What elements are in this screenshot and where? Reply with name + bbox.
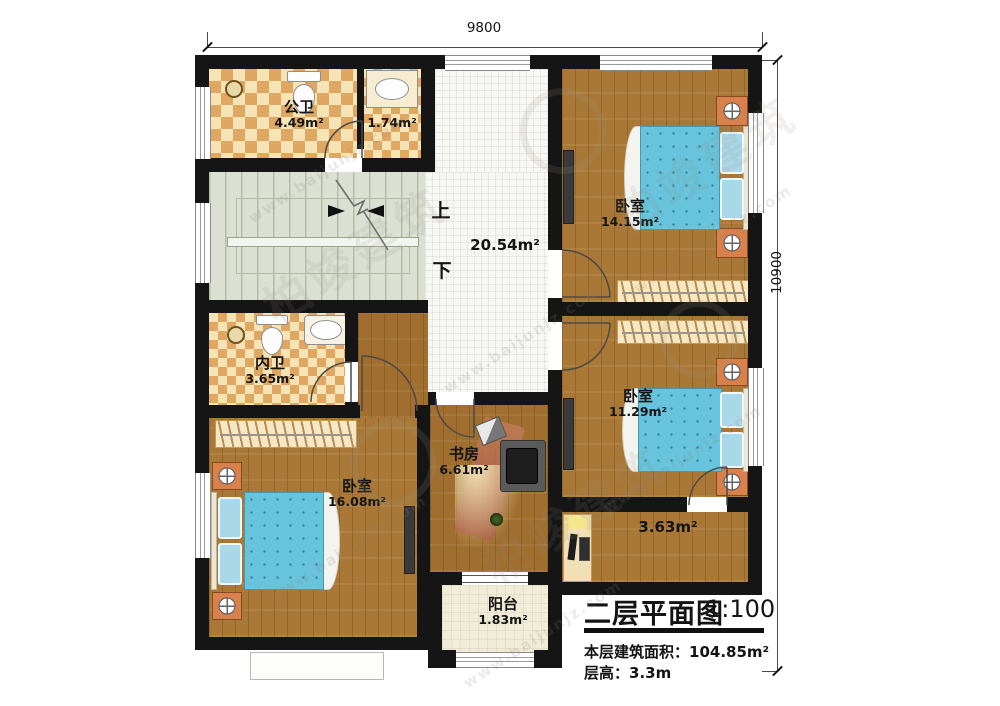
dimension-line-right	[777, 60, 778, 672]
floor-plan-canvas: 公卫 4.49m² 1.74m² 20.54m² 卧室 14.15m² 内卫 3…	[0, 0, 1000, 706]
room-label-inner-bath: 内卫 3.65m²	[245, 355, 294, 386]
room-name: 书房	[439, 446, 488, 463]
room-area: 3.63m²	[638, 519, 697, 536]
room-name: 卧室	[328, 478, 386, 495]
room-area: 6.61m²	[439, 463, 488, 477]
room-area: 1.83m²	[478, 613, 527, 627]
room-area: 14.15m²	[601, 215, 659, 229]
room-area: 4.49m²	[274, 116, 323, 130]
room-name: 卧室	[609, 388, 667, 405]
floor-height-line: 层高：3.3m	[584, 662, 671, 683]
room-name: 阳台	[478, 596, 527, 613]
floor-height-value: 3.3m	[629, 664, 671, 682]
room-label-bedroom-right: 卧室 11.29m²	[609, 388, 667, 419]
floor-area-label: 本层建筑面积：	[584, 643, 689, 661]
stair-up-label: 上	[431, 196, 450, 223]
title-underline	[584, 628, 764, 633]
dimension-right-value: 10900	[769, 251, 785, 294]
floor-height-label: 层高：	[584, 664, 629, 682]
room-label-balcony: 阳台 1.83m²	[478, 596, 527, 627]
room-label-bedroom-bottom-left: 卧室 16.08m²	[328, 478, 386, 509]
floor-area-line: 本层建筑面积：104.85m²	[584, 641, 769, 662]
room-label-small-bath: 1.74m²	[367, 116, 416, 130]
room-name: 公卫	[274, 99, 323, 116]
floor-area-value: 104.85m²	[689, 643, 769, 661]
stair-down-label: 下	[432, 256, 451, 283]
room-area: 20.54m²	[470, 237, 540, 254]
room-area: 3.65m²	[245, 372, 294, 386]
room-name: 内卫	[245, 355, 294, 372]
plan-title: 二层平面图	[584, 592, 724, 631]
dimension-top-value: 9800	[467, 20, 501, 36]
room-name: 卧室	[601, 198, 659, 215]
room-area: 16.08m²	[328, 495, 386, 509]
room-area: 11.29m²	[609, 405, 667, 419]
room-area: 1.74m²	[367, 116, 416, 130]
room-label-study: 书房 6.61m²	[439, 446, 488, 477]
room-label-public-bath: 公卫 4.49m²	[274, 99, 323, 130]
plan-scale: 1:100	[706, 595, 775, 623]
dimension-line-top	[207, 47, 762, 48]
room-label-hallway: 20.54m²	[470, 237, 540, 254]
room-label-bedroom-top-right: 卧室 14.15m²	[601, 198, 659, 229]
stair-direction-arrow	[328, 180, 388, 250]
room-label-corridor: 3.63m²	[638, 519, 697, 536]
